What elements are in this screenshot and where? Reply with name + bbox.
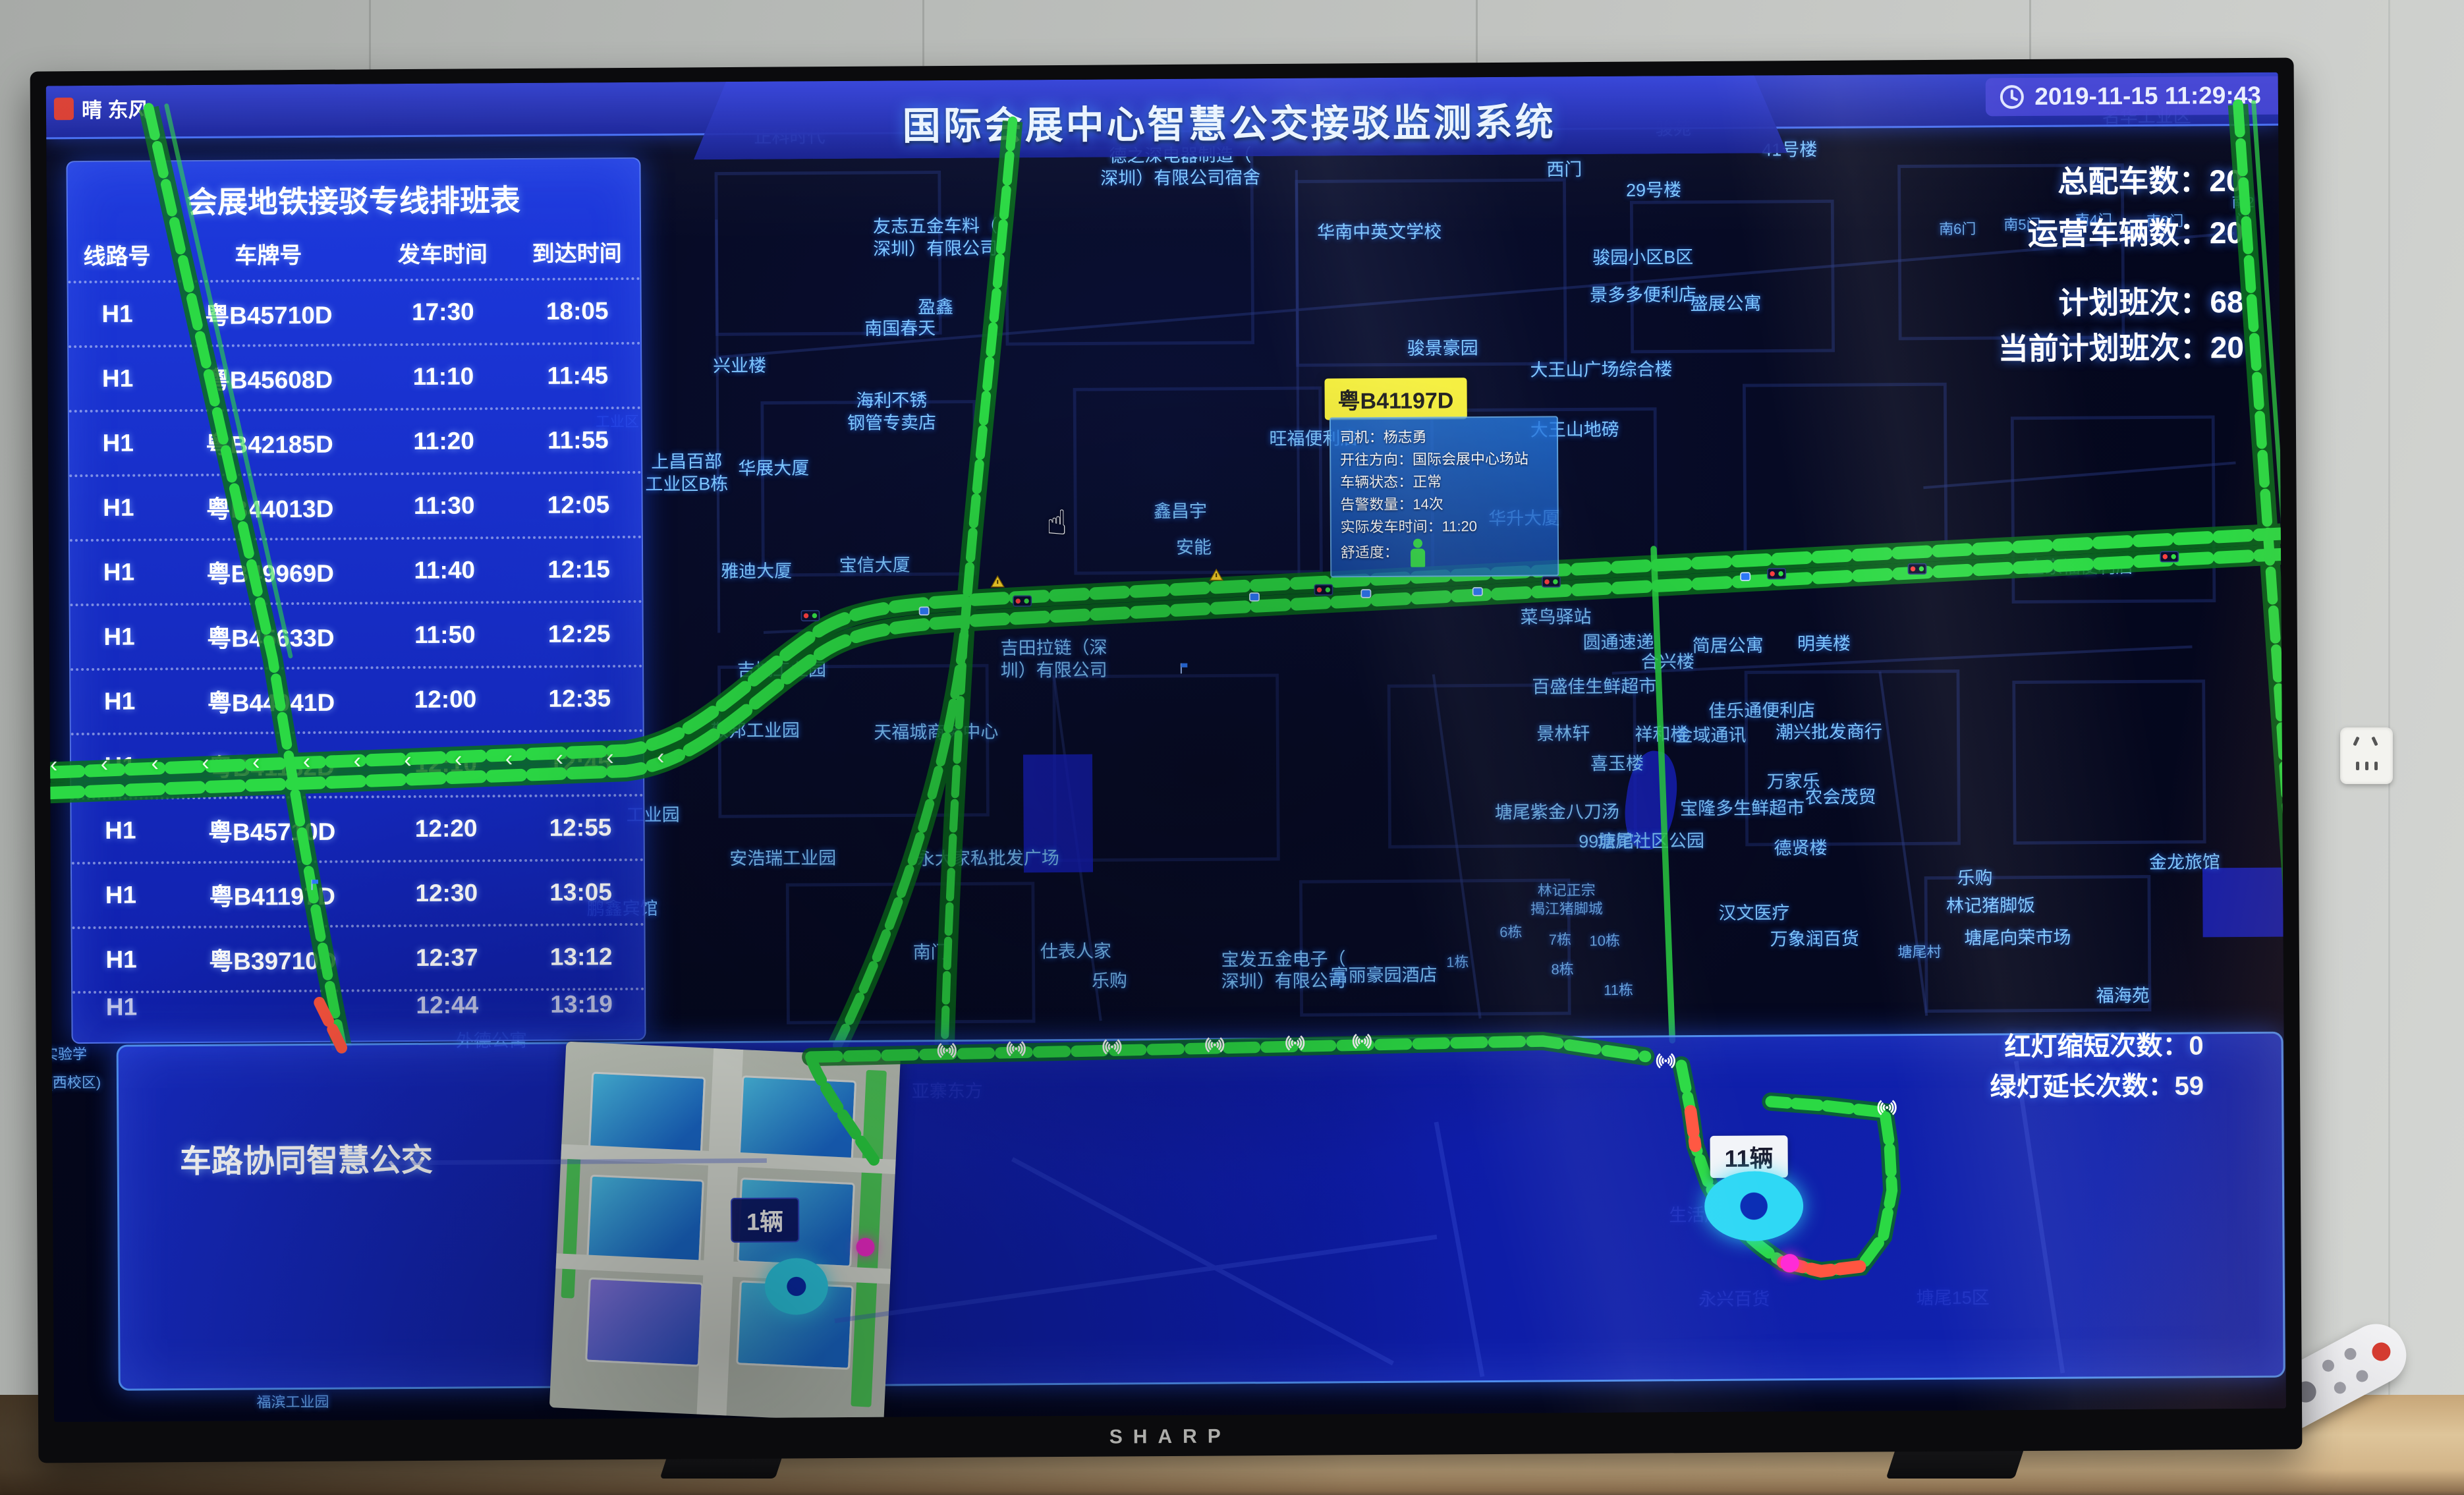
map-label: 骏园小区B区 — [1592, 246, 1693, 269]
text: 12:05 — [515, 490, 641, 519]
map-label: 吉田拉链（深 圳）有限公司 — [1000, 637, 1107, 682]
text: 12:00 — [374, 685, 517, 714]
map-label: 佳乐通便利店 — [1708, 700, 1815, 723]
text: 粤B45608D — [166, 359, 372, 396]
text: 20 — [2210, 215, 2243, 250]
text: 开往方向 — [1340, 451, 1398, 468]
text: H1 — [69, 429, 167, 457]
signal-stat-line: 红灯缩短次数：0 — [2004, 1024, 2204, 1063]
text: ： — [2179, 163, 2209, 198]
text: H1 — [70, 623, 168, 651]
popup-line: 舒适度： — [1341, 538, 1548, 568]
map-label: 上昌百部 工业区B栋 — [645, 451, 728, 496]
map-label: 友志五金车料（ 深圳）有限公司 — [873, 215, 997, 261]
map-label: 福滨工业园 — [256, 1393, 329, 1411]
map-label: 29号楼 — [1626, 180, 1681, 202]
map-label: 农会茂贸 — [1805, 787, 1876, 809]
clock-icon — [1999, 84, 2025, 110]
text: 17:30 — [372, 298, 515, 326]
stat-line: 计划班次：68 — [2058, 278, 2244, 323]
map-label: 万象润百货 — [1770, 928, 1859, 951]
text: 总配车数 — [2058, 163, 2179, 198]
text: 当前计划班次 — [1998, 331, 2180, 366]
text: 11:30 — [373, 492, 516, 520]
wall-seam — [2029, 0, 2031, 59]
map-label: 海利不锈 钢管专卖店 — [847, 389, 936, 434]
socket — [2349, 734, 2384, 752]
text: H1 — [69, 364, 167, 393]
map-label: 福海苑 — [2096, 985, 2150, 1007]
map-label: 百盛佳生鲜超市 — [1532, 675, 1656, 698]
table-row[interactable]: H1粤B49969D11:4012:15 — [70, 538, 642, 606]
power-outlet — [2340, 727, 2393, 784]
map-label: 金家福便利店 — [2027, 557, 2133, 580]
remote-power-button[interactable] — [2368, 1340, 2394, 1365]
map-label: 潮兴批发商行 — [1776, 721, 1882, 744]
text: 13:19 — [518, 990, 644, 1018]
text: H1 — [69, 300, 166, 328]
text: H1 — [70, 558, 168, 586]
signal-stat-line: 绿灯延长次数：59 — [1990, 1064, 2204, 1104]
map-label: 林记猪脚饭 — [1946, 895, 2035, 918]
text: 运营车辆数 — [2028, 215, 2179, 250]
text: 12:35 — [517, 684, 642, 712]
stat-line: 总配车数：20 — [2058, 157, 2243, 202]
wall-seam — [369, 0, 371, 72]
map-label: 汉文医疗 — [1718, 902, 1789, 924]
text: 粤B44013D — [167, 488, 373, 525]
schedule-rows: H1粤B45710D17:3018:05H1粤B45608D11:1011:45… — [69, 279, 644, 1021]
map-label: 华南中英文学校 — [1317, 221, 1442, 244]
map-label: 安浩瑞工业园 — [729, 847, 836, 870]
text: H1 — [72, 816, 169, 845]
map-label: 宝隆多生鲜超市 — [1680, 798, 1805, 821]
text: 12:15 — [516, 555, 642, 583]
map-label: 敬邦工业园 — [711, 719, 800, 743]
wall-seam — [1476, 0, 1478, 63]
map-label: 7栋 — [1549, 931, 1571, 949]
person-icon — [1408, 538, 1428, 567]
text: H1 — [72, 881, 170, 909]
weather-icon — [54, 98, 74, 120]
weather-readout: 晴 东风 — [54, 93, 149, 123]
text: 杨志勇 — [1384, 429, 1427, 445]
map-label: 喜玉楼 — [1590, 753, 1644, 776]
popup-line: 开往方向：国际会展中心场站 — [1340, 448, 1548, 472]
text: 粤B45710D — [166, 295, 372, 331]
text: 车牌号 — [165, 237, 372, 270]
text: ： — [1369, 429, 1384, 445]
map-label: 明美楼 — [1797, 633, 1851, 656]
map-label: 华展大厦 — [738, 458, 809, 480]
text: 12:37 — [376, 944, 518, 972]
map-label: 鑫昌宇 — [1154, 501, 1207, 523]
text: 司机 — [1340, 429, 1369, 445]
text: 11:10 — [372, 362, 515, 391]
text: 红灯缩短次数 — [2004, 1032, 2162, 1061]
map-label: 林记正宗 揭江猪脚城 — [1530, 882, 1603, 918]
photo-scene: 正科时代德之深电器制造（ 深圳）有限公司宿舍友志五金车料（ 深圳）有限公司华南中… — [0, 0, 2464, 1495]
table-row[interactable]: H1粤B45608D11:1011:45 — [69, 344, 641, 412]
text: 12:25 — [517, 619, 642, 648]
vehicle-plate-tag[interactable]: 粤B41197D — [1324, 378, 1467, 420]
text: H1 — [71, 687, 169, 716]
map-label: 德贤楼 — [1774, 837, 1827, 860]
map-label: 乐购 — [1092, 970, 1127, 992]
map-label: 塘尾村 — [1897, 943, 1941, 961]
text: 20 — [2209, 163, 2243, 198]
map-label: 兴业楼 — [713, 355, 766, 378]
map-label: 金龙旅馆 — [2149, 851, 2220, 874]
text: 舒适度 — [1341, 544, 1384, 560]
tv-frame: 正科时代德之深电器制造（ 深圳）有限公司宿舍友志五金车料（ 深圳）有限公司华南中… — [30, 58, 2303, 1463]
text: 14次 — [1413, 496, 1443, 513]
map-label: 南6门 — [1939, 220, 1976, 239]
map-label: 塘尾紫金八刀汤 — [1495, 801, 1619, 824]
map-label: 雅迪大厦 — [721, 561, 792, 583]
table-row[interactable]: H1粤B41197D12:3013:05 — [72, 860, 644, 928]
schedule-header-row: 线路号车牌号发车时间到达时间 — [69, 225, 640, 283]
map-label: 6栋 — [1499, 923, 1522, 942]
text: ： — [1427, 519, 1442, 535]
tv-brand-logo: SHARP — [1109, 1425, 1231, 1448]
text: 车辆状态 — [1340, 474, 1398, 491]
map-label: 菜鸟驿站 — [1520, 607, 1591, 629]
map-label: 宝信大厦 — [839, 555, 910, 577]
map-label: 吉城工业园 — [737, 660, 826, 683]
text: 国际会展中心场站 — [1413, 451, 1528, 468]
text: 11:20 — [1442, 519, 1477, 535]
text: 实际发车时间 — [1340, 519, 1427, 536]
text: 59 — [2174, 1071, 2204, 1100]
text: ： — [1398, 474, 1413, 490]
stat-line: 当前计划班次：20 — [1998, 324, 2245, 368]
table-row[interactable]: H1粤B39710D12:3713:12 — [72, 925, 644, 993]
alert-dot — [856, 1238, 875, 1256]
map-label: 南门 — [913, 942, 949, 964]
map-label: 景林轩 — [1536, 723, 1590, 745]
convention-center-map — [549, 1042, 900, 1422]
map-label: 金域通讯 — [1675, 725, 1746, 747]
text: 计划班次 — [2058, 285, 2179, 320]
text: ： — [2179, 215, 2210, 250]
table-row[interactable]: H1粤B45710D12:2012:55 — [72, 796, 644, 864]
text: 13:05 — [518, 878, 644, 906]
map-label: 塘尾向荣市场 — [1964, 927, 2071, 950]
text: 正常 — [1413, 474, 1442, 490]
text: 粤B49969D — [167, 553, 374, 590]
popup-line: 司机：杨志勇 — [1340, 426, 1548, 449]
text: 11:55 — [515, 426, 641, 454]
text: 粤B41197D — [169, 876, 376, 913]
timestamp: 2019-11-15 11:29:43 — [2034, 82, 2261, 111]
text: 粤B42185D — [167, 424, 373, 461]
socket — [2349, 758, 2384, 776]
station-marker — [1704, 1171, 1803, 1241]
map-label: 塘尾社区公园 — [1598, 830, 1704, 853]
text: ： — [1398, 496, 1413, 513]
text: ： — [1398, 451, 1413, 468]
map-label: 合兴楼 — [1641, 652, 1694, 674]
text: ： — [1384, 544, 1399, 560]
page-title: 国际会展中心智慧公交接驳监测系统 — [902, 91, 1556, 150]
table-row[interactable]: H112:4413:19 — [73, 990, 645, 1021]
text: ： — [2180, 331, 2210, 365]
text: ： — [2162, 1031, 2189, 1060]
map-label: 安能 — [1176, 537, 1212, 559]
mouse-cursor-icon: ☝ — [1046, 503, 1067, 543]
text: 粤B45710D — [169, 811, 375, 848]
schedule-title: 会展地铁接驳专线排班表 — [68, 175, 640, 222]
bottom-panel: 车路协同智慧公交 — [117, 1032, 2285, 1391]
table-row[interactable]: H1粤B45633D11:5012:25 — [70, 602, 642, 670]
popup-line: 实际发车时间：11:20 — [1340, 515, 1548, 539]
text: 12:30 — [375, 879, 518, 907]
map-label: 宝发五金电子（ 深圳）有限公司 — [1221, 948, 1345, 994]
text — [170, 1005, 376, 1007]
text: H1 — [73, 993, 171, 1021]
text: 到达时间 — [514, 235, 640, 268]
table-row[interactable]: H1粤B42185D11:2011:55 — [69, 409, 641, 476]
map-label: (西校区) — [47, 1073, 101, 1092]
map-label: 西门 — [1546, 159, 1582, 181]
dashboard-screen[interactable]: 正科时代德之深电器制造（ 深圳）有限公司宿舍友志五金车料（ 深圳）有限公司华南中… — [46, 72, 2286, 1423]
map-label: 仕表人家 — [1040, 941, 1111, 963]
table-row[interactable]: H1粤B44013D11:3012:05 — [70, 473, 642, 541]
text: ： — [2179, 285, 2210, 320]
bus-count-label: 1辆 — [731, 1197, 799, 1243]
vehicle-info-popup[interactable]: 司机：杨志勇开往方向：国际会展中心场站车辆状态：正常告警数量：14次实际发车时间… — [1330, 416, 1559, 577]
bottom-panel-title: 车路协同智慧公交 — [180, 1134, 433, 1181]
station-marker — [765, 1258, 829, 1315]
text: 12:44 — [376, 991, 518, 1019]
map-label: 圆通速递 — [1583, 631, 1654, 654]
text: 粤B45633D — [168, 617, 374, 654]
text: ： — [2148, 1071, 2174, 1100]
schedule-panel[interactable]: 会展地铁接驳专线排班表 线路号车牌号发车时间到达时间 H1粤B45710D17:… — [67, 157, 646, 1044]
text: 粤B39710D — [170, 940, 376, 977]
text: 告警数量 — [1340, 496, 1398, 513]
table-row[interactable]: H1粤B45710D17:3018:05 — [69, 279, 640, 347]
map-label: 乐购 — [1957, 867, 1992, 889]
text: H1 — [70, 494, 167, 522]
map-label: 盛展公寓 — [1690, 293, 1761, 315]
map-label: 骏景豪园 — [1407, 337, 1478, 360]
map-label: 盈鑫 — [918, 296, 953, 319]
map-label: 11栋 — [1604, 981, 1633, 1000]
text: 发车时间 — [371, 236, 514, 269]
text: 12:55 — [517, 813, 643, 841]
map-label: 天福城商务中心 — [874, 721, 998, 744]
text: 68 — [2210, 285, 2243, 319]
map-label: 10栋 — [1589, 932, 1620, 950]
popup-line: 车辆状态：正常 — [1340, 470, 1548, 494]
map-label: 南国春天 — [864, 318, 936, 340]
text: 11:20 — [372, 427, 515, 455]
text: 20 — [2210, 330, 2244, 364]
text: 0 — [2189, 1031, 2204, 1060]
map-label: 简居公寓 — [1693, 635, 1764, 658]
stat-line: 运营车辆数：20 — [2028, 209, 2244, 254]
text: 11:45 — [515, 361, 640, 389]
map-label: 永大家私批发广场 — [917, 847, 1059, 870]
map-label: 1栋 — [1446, 953, 1469, 971]
alert-dot — [1780, 1254, 1799, 1272]
text: 11:50 — [374, 621, 517, 649]
text: 12:20 — [375, 814, 518, 843]
table-row[interactable]: H1粤B44041D12:0012:35 — [71, 667, 643, 735]
text: 13:12 — [518, 942, 644, 971]
map-label: 景多多便利店 — [1590, 284, 1696, 307]
map-label: 8栋 — [1551, 960, 1573, 978]
text: 绿灯延长次数 — [1990, 1072, 2148, 1102]
weather-text: 晴 东风 — [82, 93, 149, 123]
wall-seam — [922, 0, 924, 66]
clock-chip: 2019-11-15 11:29:43 — [1986, 76, 2278, 117]
text: 粤B44041D — [168, 682, 374, 719]
map-label: 实验学 — [46, 1046, 87, 1064]
text: H1 — [72, 945, 170, 974]
map-label: 大王山广场综合楼 — [1530, 359, 1672, 382]
popup-line: 告警数量：14次 — [1340, 493, 1548, 517]
map-label: 富丽豪园酒店 — [1331, 964, 1438, 987]
text: 18:05 — [515, 296, 640, 325]
text: 线路号 — [69, 238, 166, 271]
text: 11:40 — [373, 556, 516, 584]
